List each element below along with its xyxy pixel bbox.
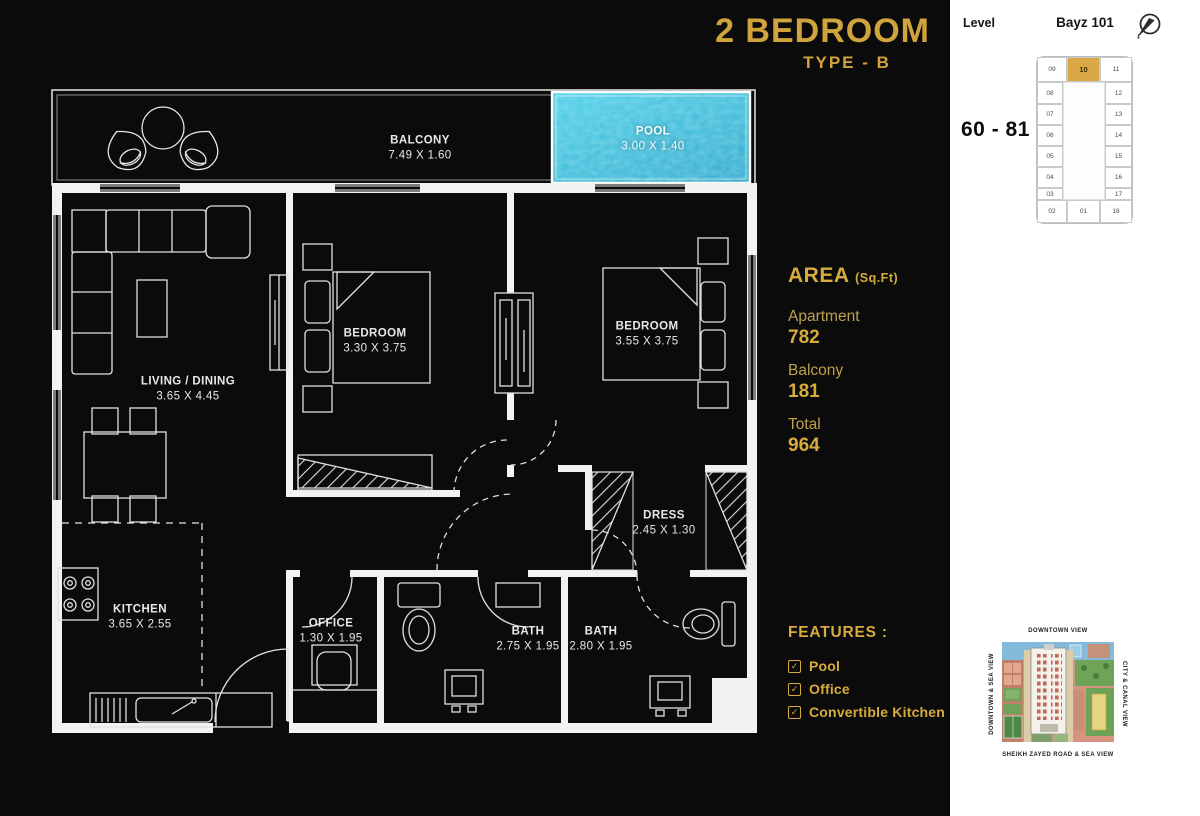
teardrop-chair <box>100 123 152 177</box>
room-label-balcony: BALCONY 7.49 X 1.60 <box>388 134 451 163</box>
area-row-value: 964 <box>788 435 938 457</box>
area-panel: AREA (Sq.Ft) Apartment 782 Balcony 181 T… <box>788 264 938 470</box>
level-range: 60 - 81 <box>961 118 1030 142</box>
bath1-door-arc <box>478 577 528 627</box>
balcony-furniture <box>100 107 226 177</box>
room-name: OFFICE <box>299 617 362 632</box>
area-row-value: 782 <box>788 327 938 349</box>
room-dims: 3.00 X 1.40 <box>621 139 684 154</box>
building-core <box>1063 82 1105 200</box>
area-unit-label: (Sq.Ft) <box>855 271 898 285</box>
unit-cell-13[interactable]: 13 <box>1105 104 1132 125</box>
room-label-bath-1: BATH 2.75 X 1.95 <box>496 625 559 654</box>
unit-cell-08[interactable]: 08 <box>1037 82 1063 104</box>
room-name: POOL <box>621 125 684 140</box>
unit-cell-03[interactable]: 03 <box>1037 188 1063 200</box>
unit-cell-11[interactable]: 11 <box>1100 57 1132 82</box>
unit-cell-01[interactable]: 01 <box>1067 200 1100 223</box>
area-row-label: Total <box>788 416 938 434</box>
wardrobe-bedroom1 <box>298 455 432 490</box>
room-name: KITCHEN <box>108 603 171 618</box>
feature-item-convertible-kitchen: ✓ Convertible Kitchen <box>788 704 958 720</box>
sliding-closet-bedrooms <box>495 293 533 393</box>
feature-label: Convertible Kitchen <box>809 704 945 720</box>
room-name: DRESS <box>632 509 695 524</box>
checked-checkbox-icon: ✓ <box>788 683 801 696</box>
room-dims: 7.49 X 1.60 <box>388 148 451 163</box>
room-name: BALCONY <box>388 134 451 149</box>
unit-cell-12[interactable]: 12 <box>1105 82 1132 104</box>
sitemap-bottom-label: SHEIKH ZAYED ROAD & SEA VIEW <box>1002 752 1113 758</box>
room-dims: 3.30 X 3.75 <box>343 341 406 356</box>
features-heading: FEATURES : <box>788 624 958 642</box>
area-row-value: 181 <box>788 381 938 403</box>
unit-cell-04[interactable]: 04 <box>1037 167 1063 188</box>
area-row-label: Apartment <box>788 308 938 326</box>
floorplan-panel: BALCONY 7.49 X 1.60 POOL 3.00 X 1.40 LIV… <box>0 0 950 816</box>
sitemap-right-label: CITY & CANAL VIEW <box>1121 661 1127 727</box>
room-label-bath-2: BATH 2.80 X 1.95 <box>569 625 632 654</box>
area-row-label: Balcony <box>788 362 938 380</box>
level-label: Level <box>963 16 995 30</box>
sliding-closet-living <box>270 275 288 370</box>
feature-label: Office <box>809 681 850 697</box>
room-dims: 2.75 X 1.95 <box>496 639 559 654</box>
features-panel: FEATURES : ✓ Pool ✓ Office ✓ Convertible… <box>788 624 958 727</box>
sofa <box>72 206 250 374</box>
area-row-total: Total 964 <box>788 416 938 457</box>
area-heading: AREA (Sq.Ft) <box>788 264 938 288</box>
sitemap-top-label: DOWNTOWN VIEW <box>1028 628 1087 634</box>
unit-grid: 091011080706050403121314151617020118 <box>1036 56 1133 224</box>
room-name: BEDROOM <box>343 327 406 342</box>
page-title: 2 BEDROOM <box>700 12 930 51</box>
room-dims: 3.55 X 3.75 <box>615 334 678 349</box>
sitemap-left-label: DOWNTOWN & SEA VIEW <box>989 653 995 735</box>
room-label-office: OFFICE 1.30 X 1.95 <box>299 617 362 646</box>
unit-cell-10[interactable]: 10 <box>1067 57 1100 82</box>
room-label-kitchen: KITCHEN 3.65 X 2.55 <box>108 603 171 632</box>
room-label-bedroom-1: BEDROOM 3.30 X 3.75 <box>343 327 406 356</box>
room-name: BATH <box>496 625 559 640</box>
unit-cell-06[interactable]: 06 <box>1037 125 1063 146</box>
unit-cell-16[interactable]: 16 <box>1105 167 1132 188</box>
room-label-dress: DRESS 2.45 X 1.30 <box>632 509 695 538</box>
unit-cell-17[interactable]: 17 <box>1105 188 1132 200</box>
unit-cell-15[interactable]: 15 <box>1105 146 1132 167</box>
room-name: BEDROOM <box>615 320 678 335</box>
building-name: Bayz 101 <box>1040 15 1130 30</box>
unit-cell-02[interactable]: 02 <box>1037 200 1067 223</box>
page-subtitle: TYPE - B <box>700 53 930 73</box>
unit-cell-05[interactable]: 05 <box>1037 146 1063 167</box>
room-dims: 1.30 X 1.95 <box>299 631 362 646</box>
feature-item-pool: ✓ Pool <box>788 658 958 674</box>
feature-label: Pool <box>809 658 840 674</box>
entrance-door <box>215 649 288 722</box>
room-dims: 2.45 X 1.30 <box>632 523 695 538</box>
room-label-bedroom-2: BEDROOM 3.55 X 3.75 <box>615 320 678 349</box>
unit-cell-09[interactable]: 09 <box>1037 57 1067 82</box>
round-table <box>142 107 184 149</box>
room-dims: 3.65 X 2.55 <box>108 617 171 632</box>
area-heading-text: AREA <box>788 264 849 287</box>
checked-checkbox-icon: ✓ <box>788 660 801 673</box>
area-row-balcony: Balcony 181 <box>788 362 938 403</box>
checked-checkbox-icon: ✓ <box>788 706 801 719</box>
feature-item-office: ✓ Office <box>788 681 958 697</box>
dining-set <box>84 408 166 522</box>
room-dims: 2.80 X 1.95 <box>569 639 632 654</box>
room-name: BATH <box>569 625 632 640</box>
site-map-image <box>1000 638 1116 746</box>
room-label-living-dining: LIVING / DINING 3.65 X 4.45 <box>141 375 235 404</box>
room-dims: 3.65 X 4.45 <box>141 389 235 404</box>
compass-icon <box>1134 12 1164 42</box>
site-map-block: DOWNTOWN VIEW SHEIKH ZAYED ROAD & SEA VI… <box>985 622 1131 772</box>
room-label-pool: POOL 3.00 X 1.40 <box>621 125 684 154</box>
coffee-table <box>137 280 167 337</box>
office-desk-chair <box>293 645 377 690</box>
unit-cell-14[interactable]: 14 <box>1105 125 1132 146</box>
unit-cell-07[interactable]: 07 <box>1037 104 1063 125</box>
area-row-apartment: Apartment 782 <box>788 308 938 349</box>
room-name: LIVING / DINING <box>141 375 235 390</box>
unit-cell-18[interactable]: 18 <box>1100 200 1132 223</box>
stove <box>58 568 98 620</box>
plan-title-block: 2 BEDROOM TYPE - B <box>700 12 930 73</box>
teardrop-chair <box>174 123 226 177</box>
walls <box>52 183 757 733</box>
